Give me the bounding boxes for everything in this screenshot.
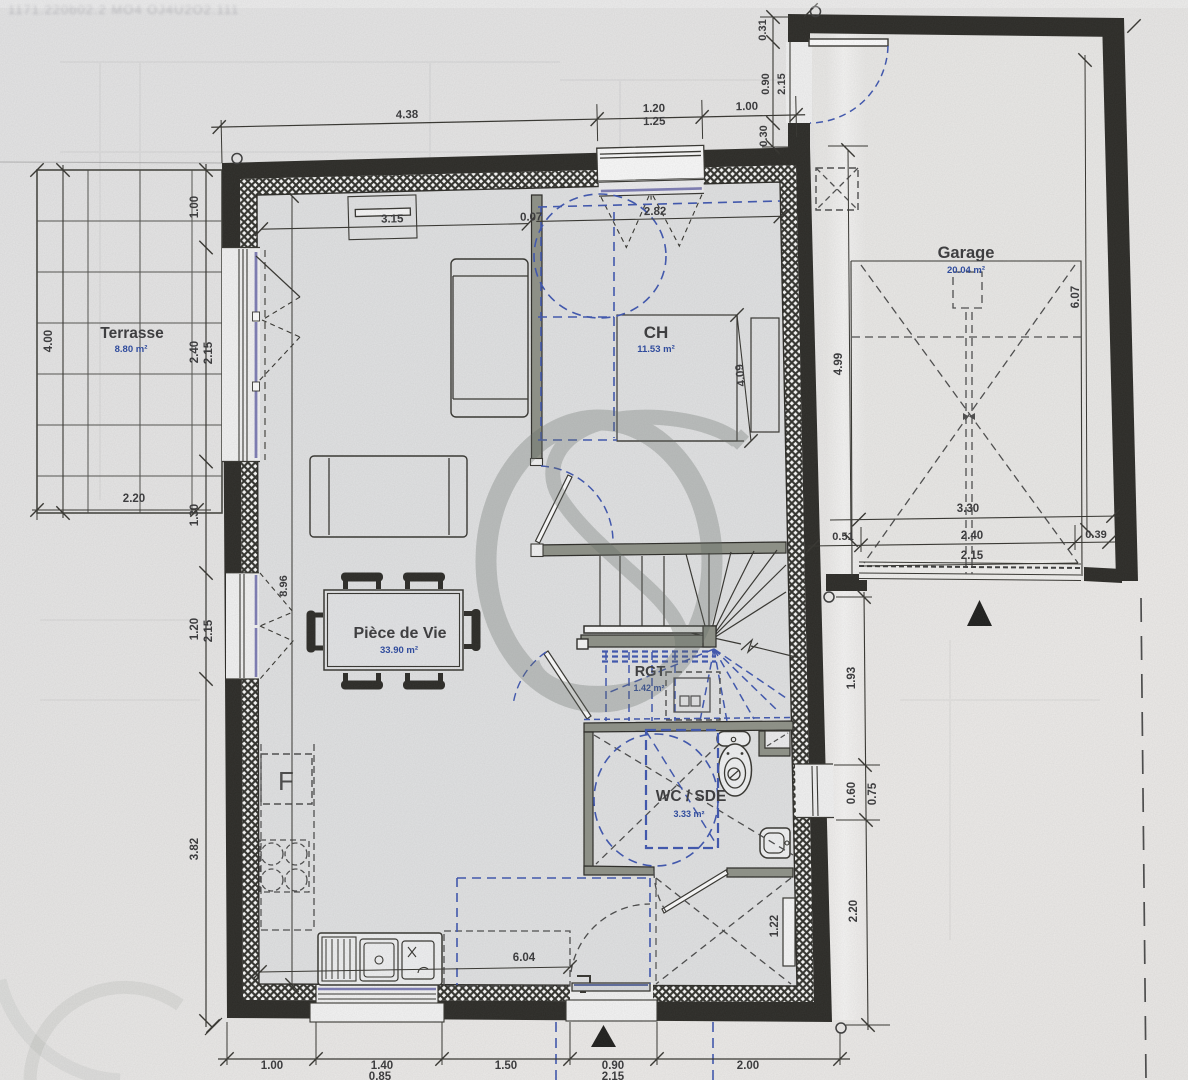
svg-text:0.75: 0.75 [867,782,879,805]
svg-text:0.51: 0.51 [832,531,853,543]
svg-text:1.93: 1.93 [846,667,858,689]
svg-text:2.15: 2.15 [203,619,215,642]
svg-text:2.20: 2.20 [123,493,145,505]
svg-text:0.31: 0.31 [757,19,769,40]
svg-text:4.38: 4.38 [396,109,419,121]
svg-text:2.15: 2.15 [602,1071,625,1080]
svg-text:6.07: 6.07 [1070,286,1082,308]
svg-text:4.99: 4.99 [833,353,845,375]
svg-text:2.40: 2.40 [189,341,201,363]
svg-text:20.04 m²: 20.04 m² [947,265,985,276]
svg-text:3.15: 3.15 [381,213,404,225]
svg-text:11.53 m²: 11.53 m² [637,344,675,355]
svg-text:33.90 m²: 33.90 m² [380,645,418,656]
svg-text:0.39: 0.39 [1085,529,1106,541]
svg-text:2.15: 2.15 [776,73,788,94]
svg-text:0.30: 0.30 [758,125,770,146]
svg-text:8.80 m²: 8.80 m² [115,344,148,355]
svg-text:4.00: 4.00 [43,330,55,352]
svg-text:2.15: 2.15 [203,341,215,364]
svg-text:8.96: 8.96 [278,575,290,596]
svg-text:CH: CH [644,323,669,342]
svg-text:3.82: 3.82 [189,838,201,860]
svg-text:2.82: 2.82 [644,206,667,218]
svg-text:2.15: 2.15 [961,550,984,562]
svg-text:2.40: 2.40 [961,530,983,542]
svg-text:0.60: 0.60 [846,782,858,804]
svg-text:3.30: 3.30 [957,503,979,515]
svg-text:0.85: 0.85 [369,1071,392,1080]
svg-text:1.00: 1.00 [189,196,201,218]
svg-text:0.90: 0.90 [760,73,772,94]
svg-text:1.00: 1.00 [736,101,759,113]
svg-text:Pièce de Vie: Pièce de Vie [353,625,446,642]
svg-text:1.20: 1.20 [189,618,201,640]
svg-text:Terrasse: Terrasse [100,325,164,342]
svg-text:Garage: Garage [938,244,995,262]
svg-text:2.20: 2.20 [848,900,860,922]
svg-text:2.00: 2.00 [737,1060,759,1072]
svg-text:6.04: 6.04 [513,952,536,964]
svg-text:1.50: 1.50 [495,1060,517,1072]
svg-text:3.33 m²: 3.33 m² [673,809,704,819]
svg-text:1.00: 1.00 [261,1060,283,1072]
svg-text:WC / SDE: WC / SDE [656,788,727,805]
svg-text:4.09: 4.09 [734,364,748,388]
svg-text:1.25: 1.25 [643,116,666,128]
svg-text:1.22: 1.22 [769,915,781,937]
svg-text:1.20: 1.20 [643,103,666,115]
